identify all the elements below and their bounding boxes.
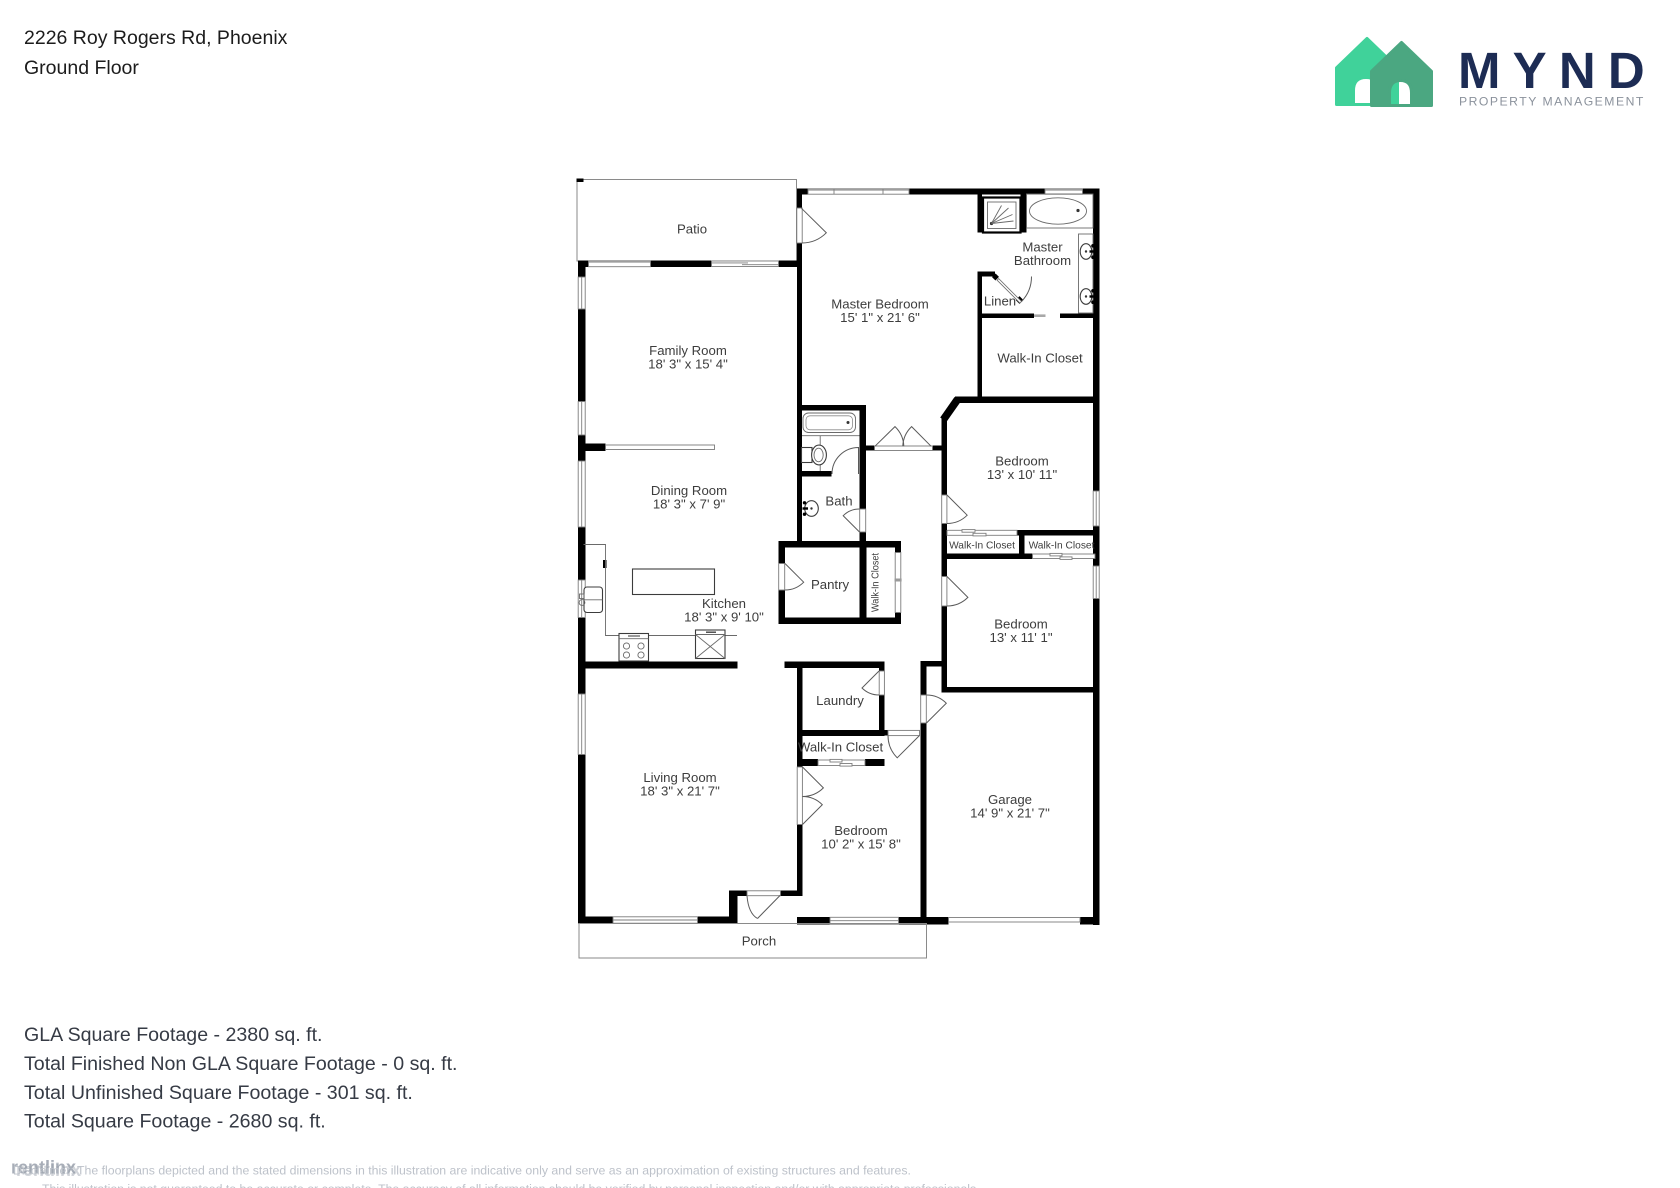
svg-text:Laundry: Laundry: [816, 693, 864, 708]
svg-text:18' 3" x 9' 10": 18' 3" x 9' 10": [684, 610, 764, 625]
svg-text:Total Square Footage - 2680 sq: Total Square Footage - 2680 sq. ft.: [24, 1111, 326, 1133]
svg-text:Ground Floor: Ground Floor: [24, 57, 139, 79]
svg-text:18' 3" x 21' 7": 18' 3" x 21' 7": [640, 784, 720, 799]
svg-text:MYND: MYND: [1458, 42, 1657, 99]
svg-text:Patio: Patio: [677, 222, 707, 237]
svg-text:2226 Roy Rogers Rd, Phoenix: 2226 Roy Rogers Rd, Phoenix: [24, 27, 288, 49]
svg-text:Disclaimer: The floorplans dep: Disclaimer: The floorplans depicted and …: [13, 1164, 911, 1178]
svg-text:13' x 11' 1": 13' x 11' 1": [990, 630, 1053, 645]
svg-text:GLA Square Footage - 2380 sq.: GLA Square Footage - 2380 sq. ft.: [24, 1024, 322, 1046]
svg-text:Pantry: Pantry: [811, 577, 850, 592]
svg-text:Walk-In Closet: Walk-In Closet: [997, 351, 1083, 366]
svg-text:Walk-In Closet: Walk-In Closet: [1029, 541, 1095, 552]
svg-text:Total Finished Non GLA Square: Total Finished Non GLA Square Footage - …: [24, 1053, 457, 1075]
svg-text:PROPERTY MANAGEMENT: PROPERTY MANAGEMENT: [1459, 95, 1645, 109]
svg-text:Porch: Porch: [742, 934, 776, 949]
svg-text:14' 9" x 21' 7": 14' 9" x 21' 7": [970, 806, 1050, 821]
svg-text:This illustration is not guara: This illustration is not guaranteed to b…: [42, 1182, 976, 1188]
svg-text:Total Unfinished Square Footag: Total Unfinished Square Footage - 301 sq…: [24, 1082, 413, 1104]
svg-text:13' x 10' 11": 13' x 10' 11": [987, 467, 1058, 482]
svg-text:15' 1" x 21' 6": 15' 1" x 21' 6": [840, 310, 920, 325]
svg-text:Linen: Linen: [984, 294, 1016, 309]
svg-text:Walk-In Closet: Walk-In Closet: [798, 740, 884, 755]
svg-text:Walk-In Closet: Walk-In Closet: [949, 541, 1015, 552]
svg-text:18' 3" x 7' 9": 18' 3" x 7' 9": [653, 497, 726, 512]
svg-text:Bath: Bath: [825, 494, 852, 509]
svg-text:Walk-In Closet: Walk-In Closet: [871, 553, 882, 612]
svg-text:Bathroom: Bathroom: [1014, 253, 1071, 268]
svg-text:10' 2" x 15' 8": 10' 2" x 15' 8": [821, 837, 901, 852]
svg-text:18' 3" x 15' 4": 18' 3" x 15' 4": [648, 357, 728, 372]
